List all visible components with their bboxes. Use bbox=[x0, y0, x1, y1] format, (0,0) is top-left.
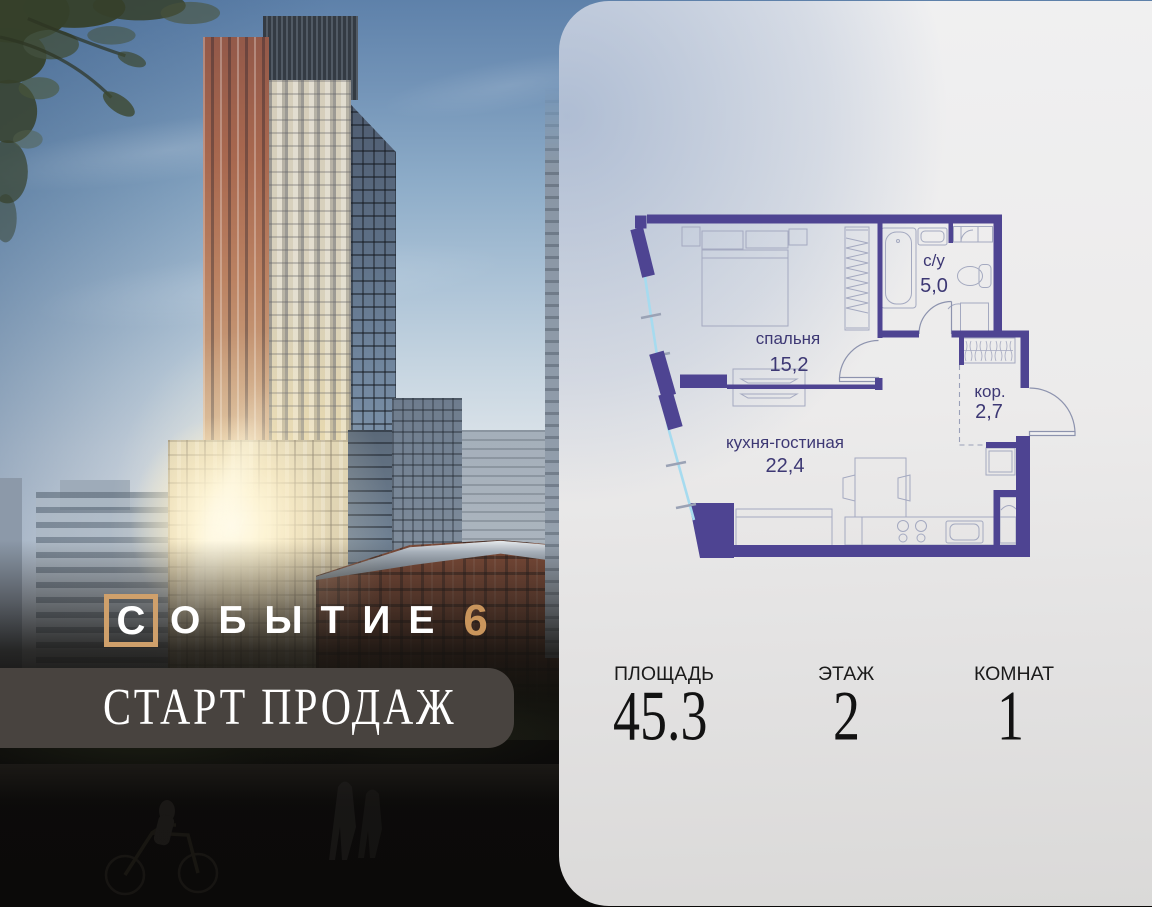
svg-text:кухня-гостиная: кухня-гостиная bbox=[726, 433, 844, 452]
svg-text:кор.: кор. bbox=[974, 382, 1005, 401]
svg-text:с/у: с/у bbox=[923, 251, 945, 270]
svg-text:15,2: 15,2 bbox=[770, 354, 809, 376]
svg-text:22,4: 22,4 bbox=[766, 455, 805, 477]
svg-text:5,0: 5,0 bbox=[920, 275, 948, 297]
svg-text:2,7: 2,7 bbox=[975, 401, 1003, 423]
svg-text:спальня: спальня bbox=[756, 329, 821, 348]
